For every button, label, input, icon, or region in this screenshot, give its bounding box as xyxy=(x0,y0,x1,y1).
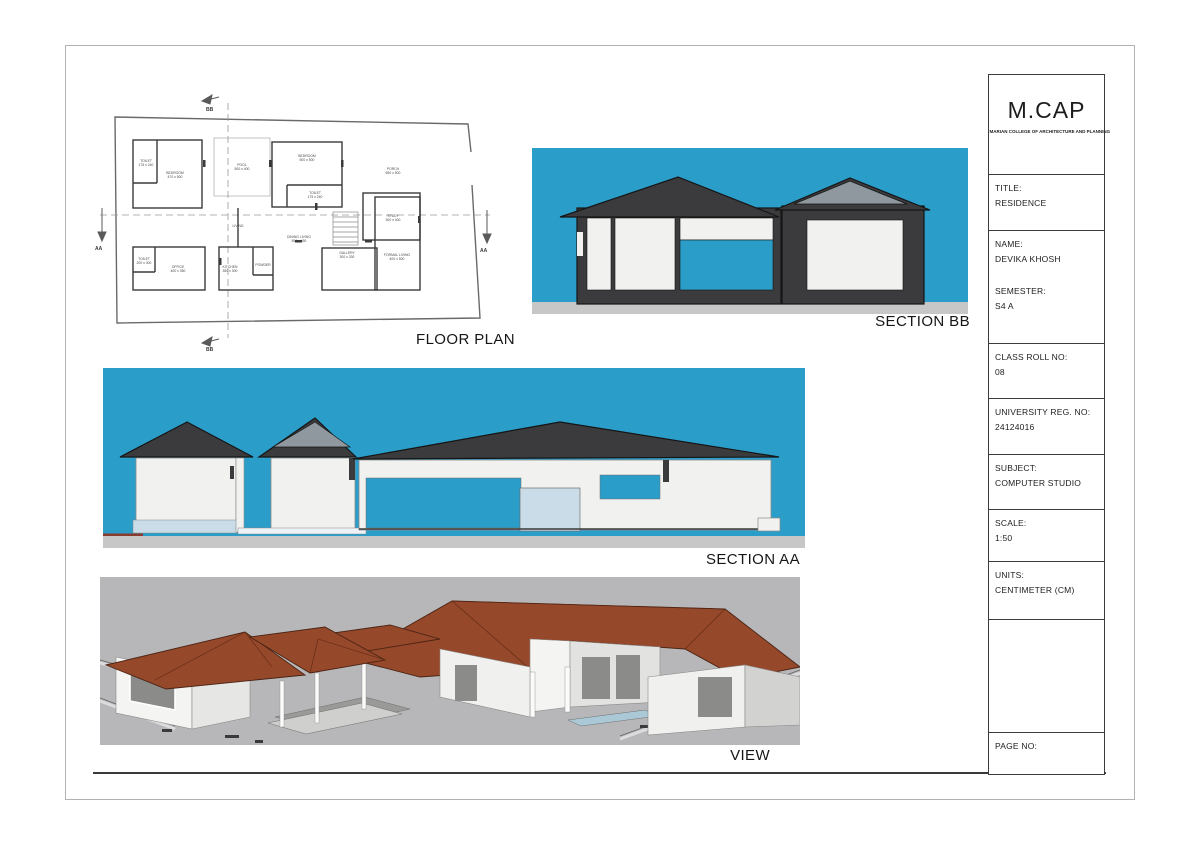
title-block-field: SCALE:1:50 xyxy=(995,518,1104,543)
room-label: KITCHEN350 x 300 xyxy=(223,265,238,273)
ground-strip xyxy=(103,536,805,548)
field-value: 24124016 xyxy=(995,422,1104,432)
room-label: DINING LIVING550 x 450 xyxy=(287,235,311,243)
floor-plan-label: FLOOR PLAN xyxy=(416,331,515,348)
section-bb-label: SECTION BB xyxy=(820,313,970,330)
ground-red-line xyxy=(103,534,143,537)
field-label: UNITS: xyxy=(995,570,1104,580)
floor-plan-drawing: AA AA BB BB TOILET175 x 240BEDROOM470 x … xyxy=(75,90,505,352)
college-logo: M.CAP xyxy=(989,75,1104,124)
pale-volume xyxy=(520,488,580,531)
title-block-field: UNITS:CENTIMETER (CM) xyxy=(995,570,1104,595)
field-value: DEVIKA KHOSH xyxy=(995,254,1104,264)
field-value: CENTIMETER (CM) xyxy=(995,585,1104,595)
title-block-field: SUBJECT:COMPUTER STUDIO xyxy=(995,463,1104,488)
wall-opening xyxy=(366,478,521,528)
title-block-row: NAME:DEVIKA KHOSHSEMESTER:S4 A xyxy=(989,230,1104,343)
field-value: COMPUTER STUDIO xyxy=(995,478,1104,488)
field-label: SCALE: xyxy=(995,518,1104,528)
field-value: RESIDENCE xyxy=(995,198,1104,208)
room-label: POOL500 x 400 xyxy=(235,163,250,171)
sheet-bottom-rule xyxy=(93,772,1106,774)
room-label: TOILET200 x 300 xyxy=(137,257,152,265)
field-label: TITLE: xyxy=(995,183,1104,193)
field-label: SEMESTER: xyxy=(995,286,1104,296)
title-block-field: NAME:DEVIKA KHOSH xyxy=(995,239,1104,264)
room-label: TOILET175 x 240 xyxy=(308,191,323,199)
room-label: BEDROOM500 x 500 xyxy=(298,154,316,162)
title-block-row: TITLE:RESIDENCE xyxy=(989,174,1104,230)
title-block-row: SCALE:1:50 xyxy=(989,509,1104,561)
view-drawing xyxy=(100,577,800,745)
section-aa-svg xyxy=(103,368,805,548)
room-label: POWDER xyxy=(255,263,271,267)
field-label: UNIVERSITY REG. NO: xyxy=(995,407,1104,417)
section-markers xyxy=(98,95,491,346)
section-aa-label: SECTION AA xyxy=(650,551,800,568)
marker-aa-right: AA xyxy=(480,248,488,254)
site-boundary xyxy=(115,117,480,323)
floor-plan-svg: AA AA BB BB TOILET175 x 240BEDROOM470 x … xyxy=(75,90,505,352)
field-label: NAME: xyxy=(995,239,1104,249)
drawing-sheet: { "colors": { "section_background_blue":… xyxy=(0,0,1200,849)
title-block-header: M.CAP MARIAN COLLEGE OF ARCHITECTURE AND… xyxy=(989,75,1104,174)
field-value: 08 xyxy=(995,367,1104,377)
field-value: S4 A xyxy=(995,301,1104,311)
door-jambs xyxy=(203,160,421,265)
field-label: SUBJECT: xyxy=(995,463,1104,473)
room-label: FORMAL LIVING400 x 500 xyxy=(384,253,410,261)
title-block-row: UNITS:CENTIMETER (CM) xyxy=(989,561,1104,619)
title-block-rows: TITLE:RESIDENCENAME:DEVIKA KHOSHSEMESTER… xyxy=(989,174,1104,776)
marker-labels: AA AA BB BB xyxy=(95,107,488,352)
room-label: BEDROOM470 x 500 xyxy=(166,171,184,179)
stairs xyxy=(333,212,358,245)
room-label: TOILET175 x 240 xyxy=(139,159,154,167)
title-block-field: UNIVERSITY REG. NO:24124016 xyxy=(995,407,1104,432)
title-block: M.CAP MARIAN COLLEGE OF ARCHITECTURE AND… xyxy=(988,74,1105,775)
title-block-field: PAGE NO: xyxy=(995,741,1104,756)
field-value: 1:50 xyxy=(995,533,1104,543)
title-block-row xyxy=(989,619,1104,732)
view-svg xyxy=(100,577,800,745)
marker-aa-left: AA xyxy=(95,246,103,252)
section-bb-drawing xyxy=(532,148,968,314)
marker-bb-bottom: BB xyxy=(206,347,214,352)
title-block-row: UNIVERSITY REG. NO:24124016 xyxy=(989,398,1104,454)
room-label: STUDY300 x 400 xyxy=(386,214,401,222)
title-block-row: PAGE NO: xyxy=(989,732,1104,776)
title-block-row: SUBJECT:COMPUTER STUDIO xyxy=(989,454,1104,509)
marker-bb-top: BB xyxy=(206,107,214,113)
room-label: OFFICE400 x 350 xyxy=(171,265,186,273)
section-bb-svg xyxy=(532,148,968,314)
field-label: PAGE NO: xyxy=(995,741,1104,751)
room-label: PORCH650 x 500 xyxy=(386,167,401,175)
title-block-field: SEMESTER:S4 A xyxy=(995,286,1104,311)
window-opening xyxy=(600,475,660,499)
title-block-row: CLASS ROLL NO:08 xyxy=(989,343,1104,398)
title-block-field: TITLE:RESIDENCE xyxy=(995,183,1104,208)
right-wing xyxy=(648,665,800,735)
college-name: MARIAN COLLEGE OF ARCHITECTURE AND PLANN… xyxy=(989,129,1104,134)
room-label: GALLERY300 x 330 xyxy=(339,251,355,259)
room-label: LIVING xyxy=(232,224,243,228)
title-block-field: CLASS ROLL NO:08 xyxy=(995,352,1104,377)
field-label: CLASS ROLL NO: xyxy=(995,352,1104,362)
view-label: VIEW xyxy=(650,747,770,764)
section-aa-drawing xyxy=(103,368,805,548)
